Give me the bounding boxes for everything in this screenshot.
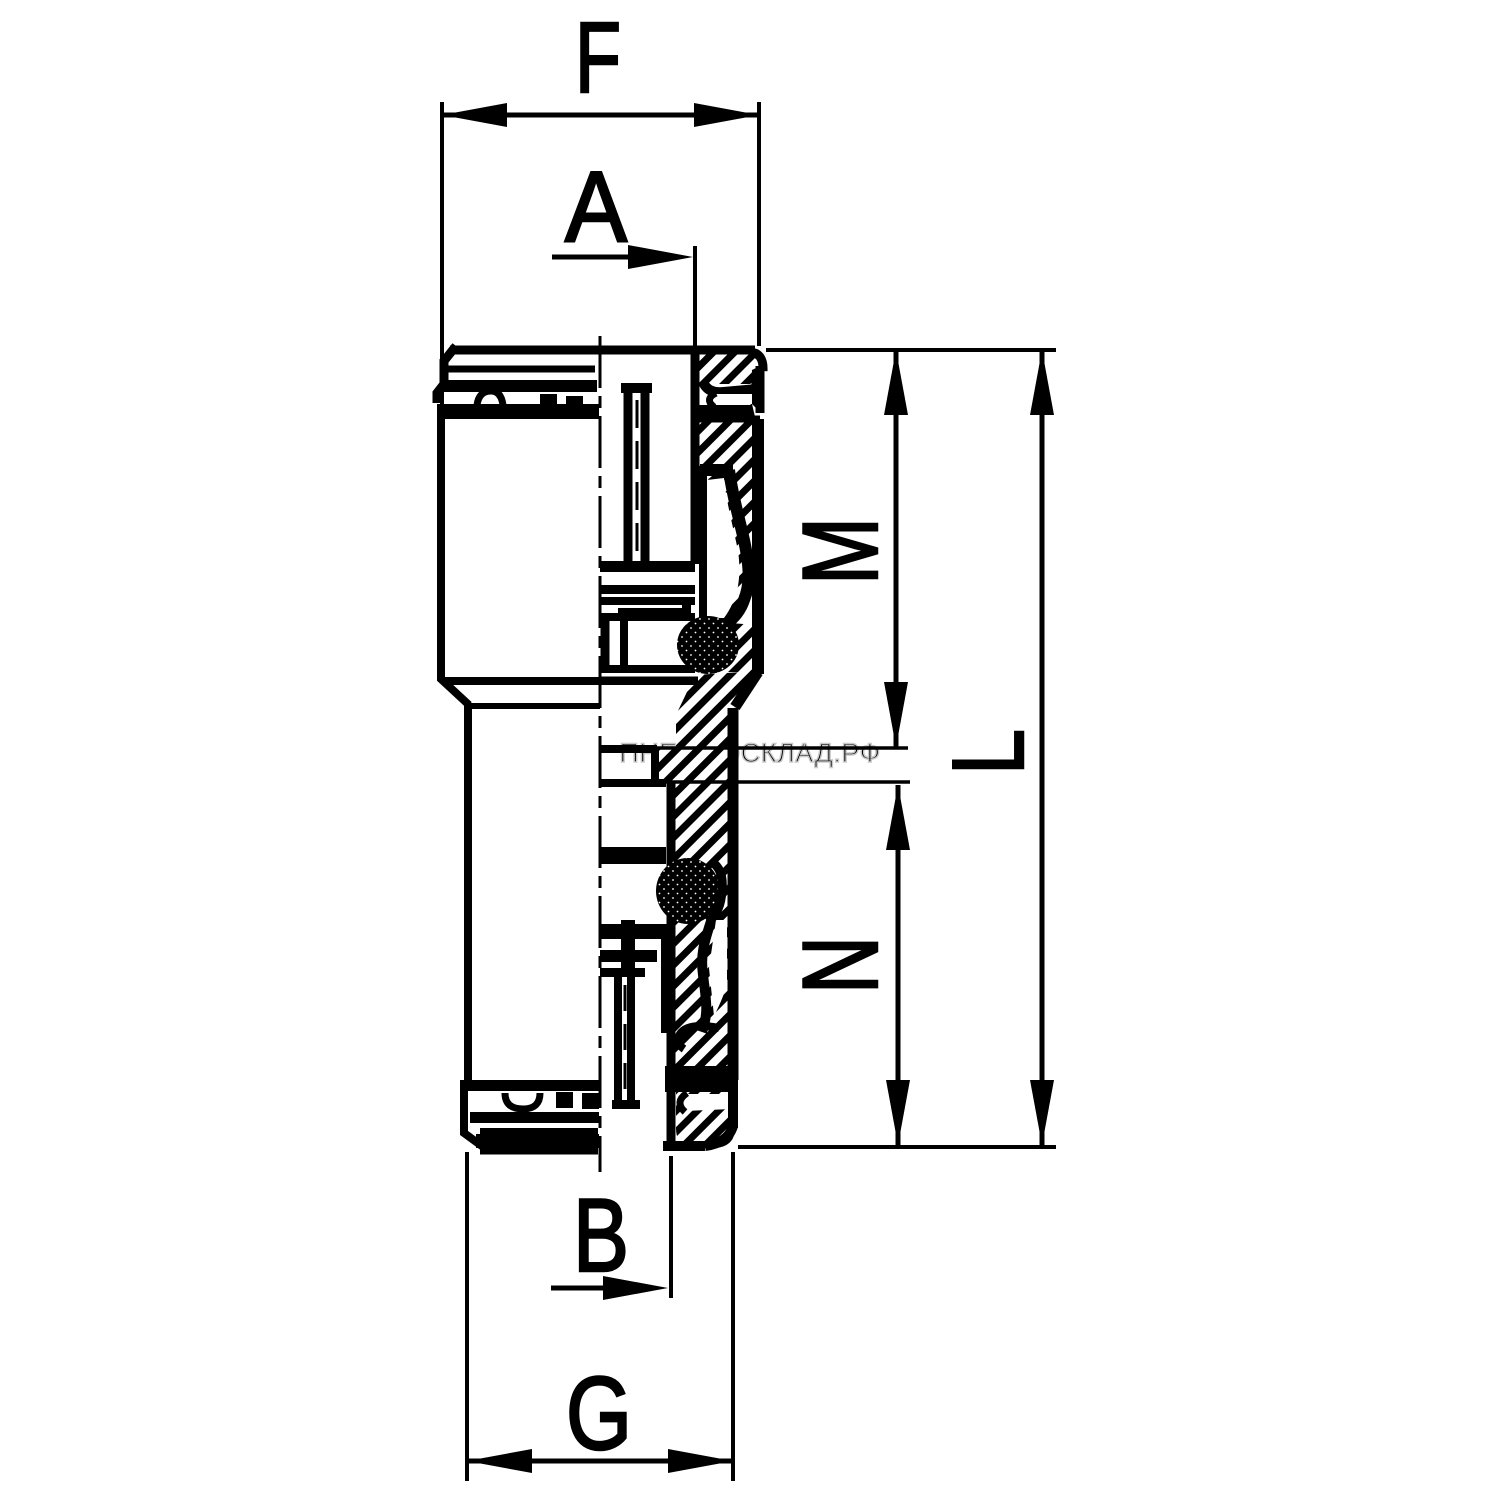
svg-text:M: M [780,517,900,585]
svg-text:N: N [780,936,900,994]
svg-text:G: G [566,1356,632,1472]
svg-text:B: B [573,1178,629,1294]
svg-text:L: L [933,729,1045,775]
svg-text:A: A [565,151,627,263]
svg-text:F: F [575,2,621,114]
